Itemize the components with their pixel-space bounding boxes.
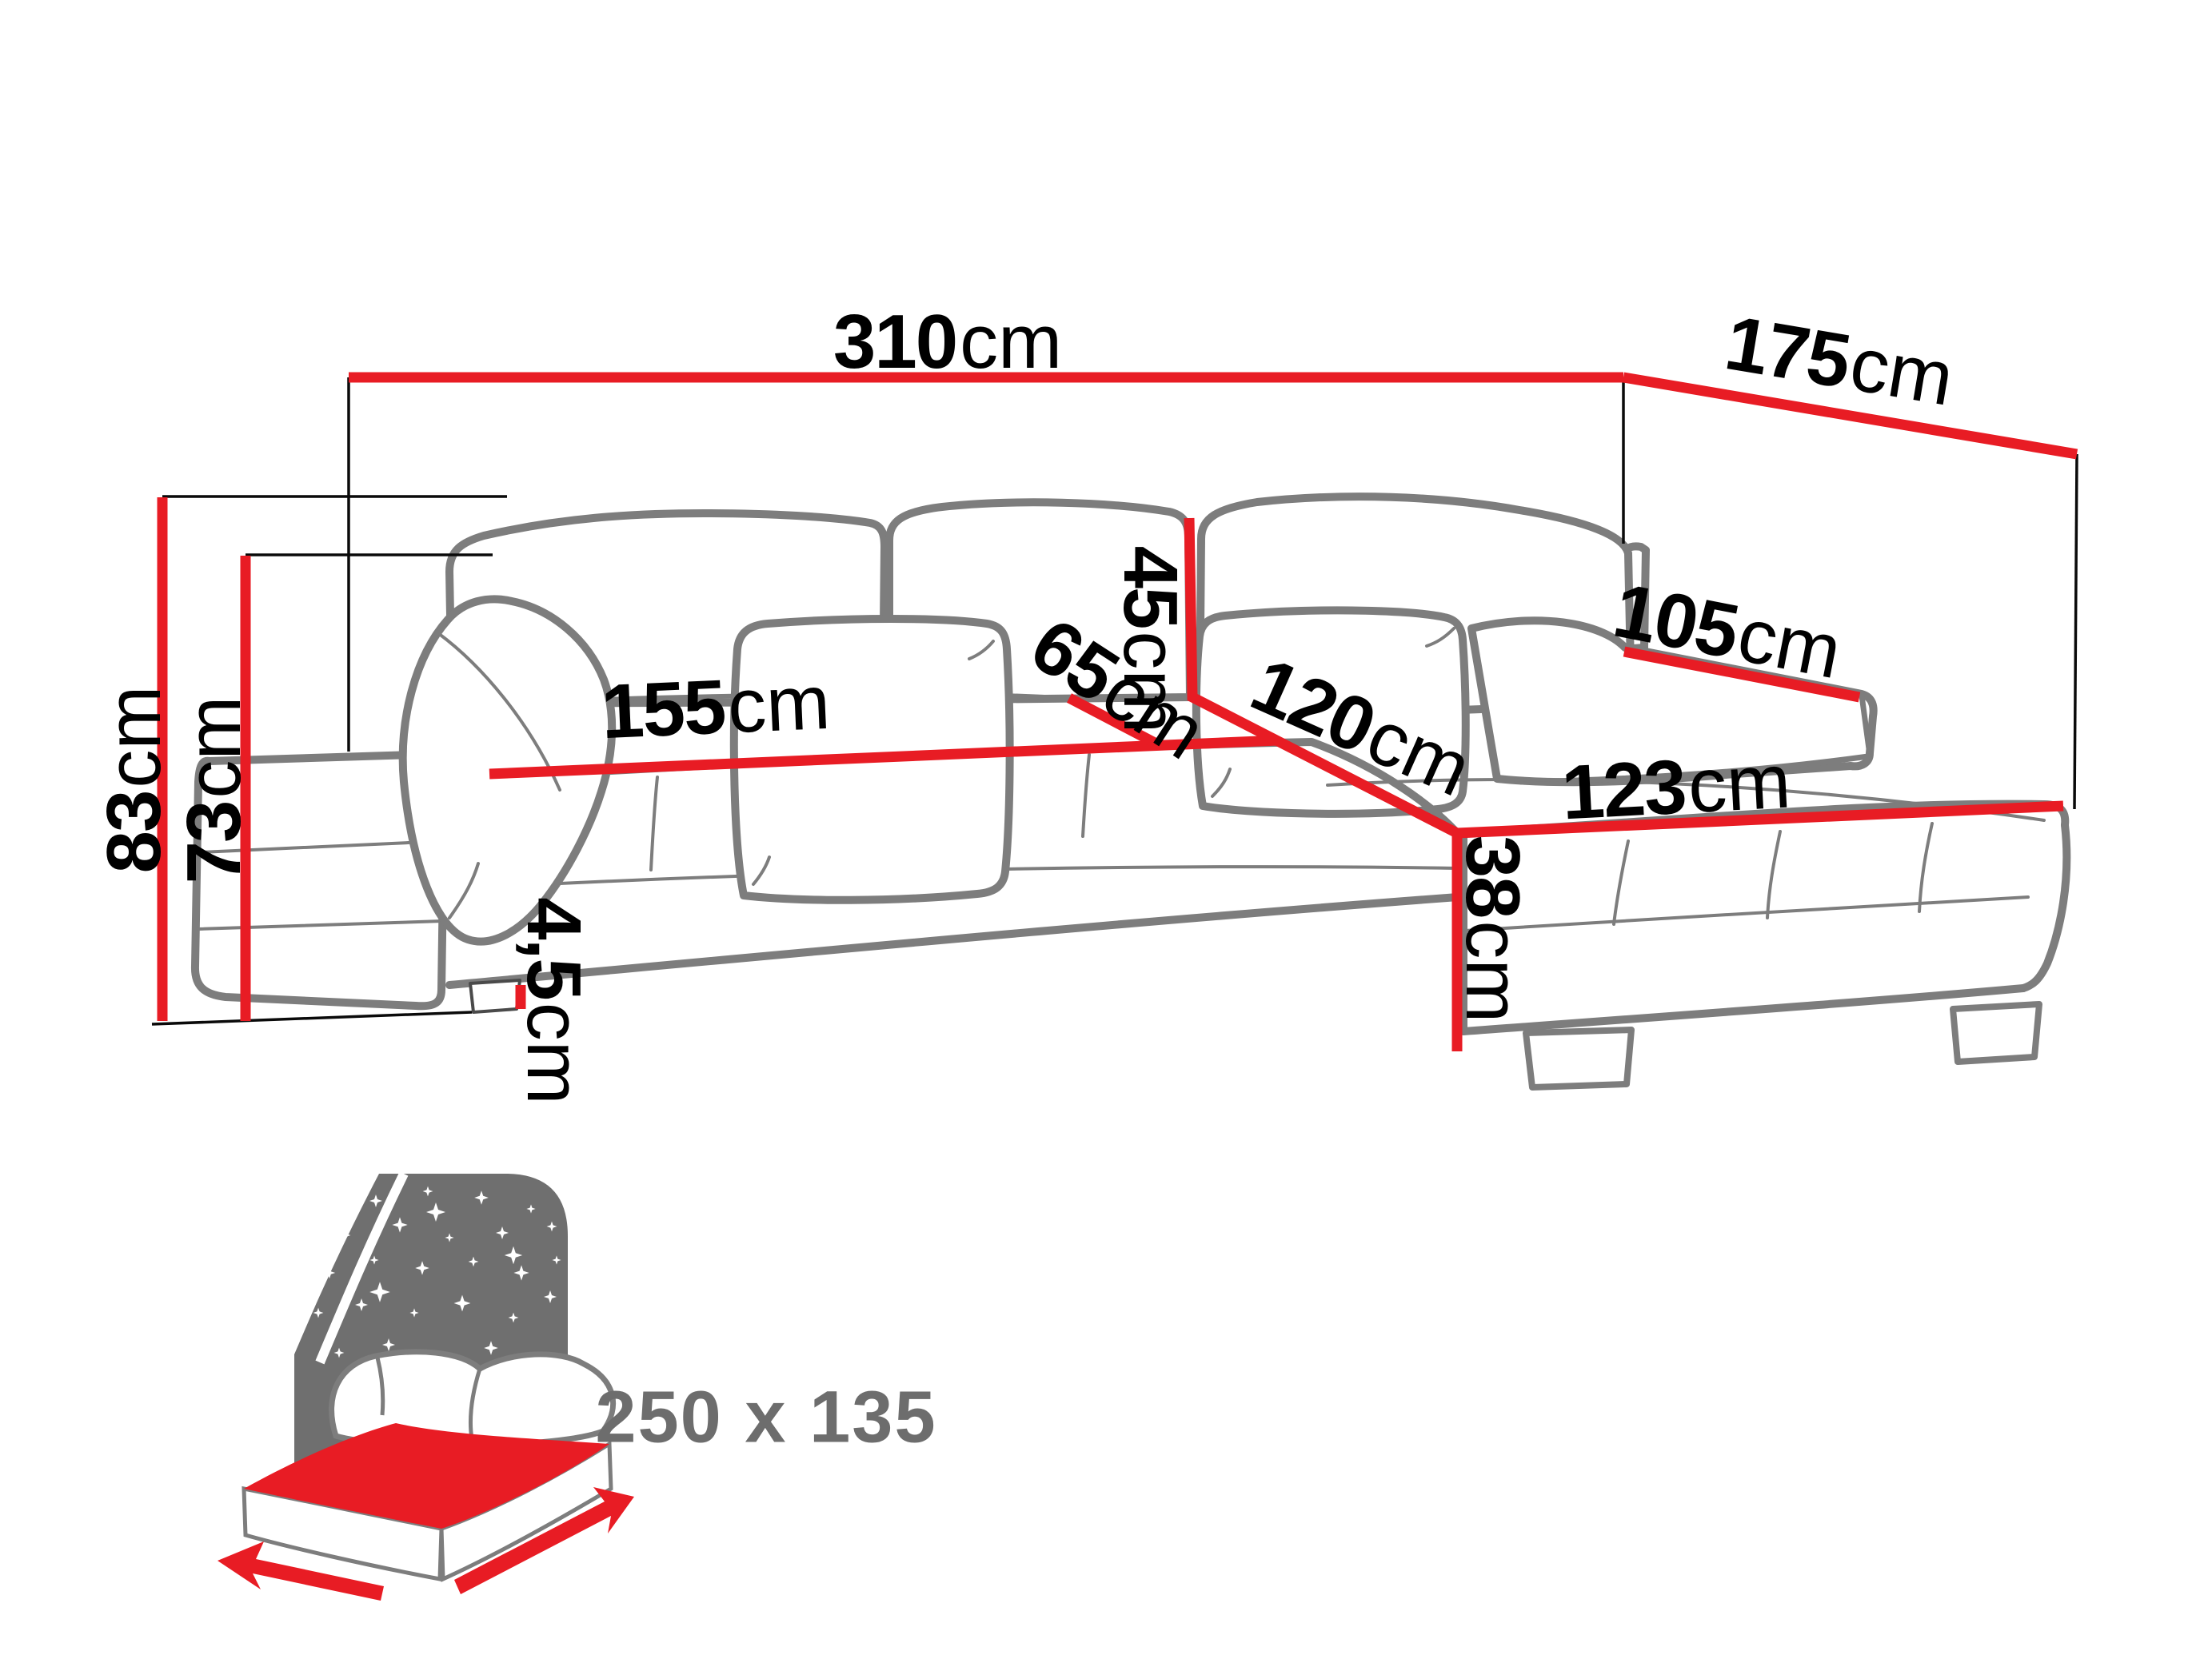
- dimension-armrest-height: 73cm: [176, 696, 253, 884]
- dimension-value: 38: [1450, 835, 1535, 918]
- dimension-total-width: 310cm: [833, 304, 1062, 381]
- sofa-dimension-diagram: 310cm 175cm 83cm 73cm 155cm 65cm 45cm 12…: [0, 0, 2212, 1659]
- dimension-value: 155: [600, 664, 727, 756]
- dimension-value: 4,5: [511, 897, 597, 999]
- dimension-value: 310: [833, 299, 956, 385]
- dimension-unit: cm: [171, 696, 257, 799]
- chaise-front-crease: [1465, 897, 2028, 931]
- dimension-chaise-length: 123cm: [1560, 744, 1793, 832]
- chaise-front-seams: [1614, 824, 1932, 924]
- dimension-unit: cm: [511, 1003, 597, 1105]
- dimension-backrest-height: 45cm: [1112, 546, 1188, 734]
- dimension-leg-height: 4,5cm: [515, 897, 592, 1104]
- dimension-unit: cm: [1844, 321, 1959, 422]
- dimension-total-height: 83cm: [96, 686, 173, 874]
- dimension-unit: cm: [960, 299, 1062, 385]
- diagram-drawing: [0, 0, 2212, 1659]
- dimension-seat-length: 155cm: [600, 664, 832, 751]
- chaise-left-leg: [1526, 1030, 1631, 1087]
- dimension-unit: cm: [1108, 631, 1193, 733]
- dimension-value: 123: [1559, 744, 1687, 835]
- dimension-value: 83: [91, 792, 177, 874]
- dimension-unit: cm: [1686, 739, 1792, 830]
- dimension-unit: cm: [726, 660, 832, 749]
- dimension-value: 45: [1108, 546, 1193, 628]
- seat-bottom-edge: [449, 897, 1458, 985]
- dimension-value: 73: [171, 802, 257, 884]
- chaise-bottom-edge: [1463, 988, 2023, 1031]
- chaise-right-edge: [2023, 825, 2066, 988]
- sleeping-function-icon: [218, 1174, 634, 1601]
- dimension-seat-height: 38cm: [1454, 835, 1531, 1023]
- dimension-unit: cm: [1450, 920, 1535, 1023]
- ext-depth-right: [2074, 454, 2077, 809]
- sleeping-area-size: 250 x 135: [595, 1376, 936, 1460]
- ext-floor: [152, 1012, 472, 1024]
- chaise-right-leg: [1953, 1004, 2039, 1062]
- dimension-unit: cm: [91, 686, 177, 788]
